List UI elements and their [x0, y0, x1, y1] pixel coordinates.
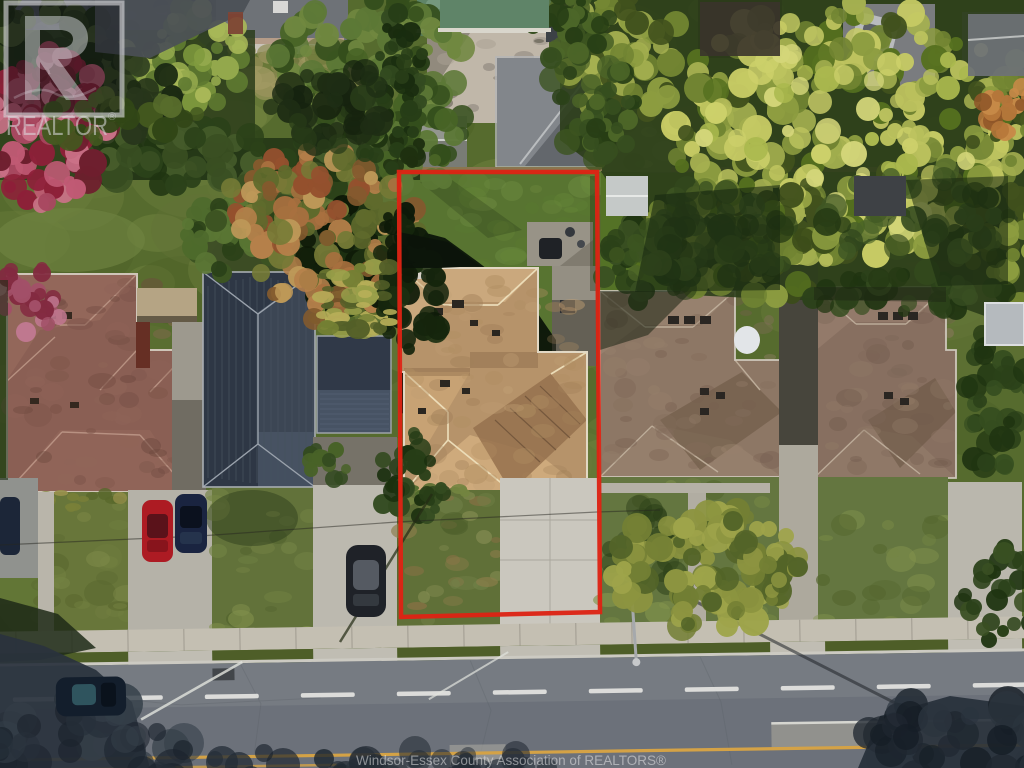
svg-text:®: ® — [108, 111, 116, 123]
svg-text:REALTOR: REALTOR — [6, 110, 108, 141]
svg-text:Windsor-Essex County Associati: Windsor-Essex County Association of REAL… — [356, 752, 667, 768]
